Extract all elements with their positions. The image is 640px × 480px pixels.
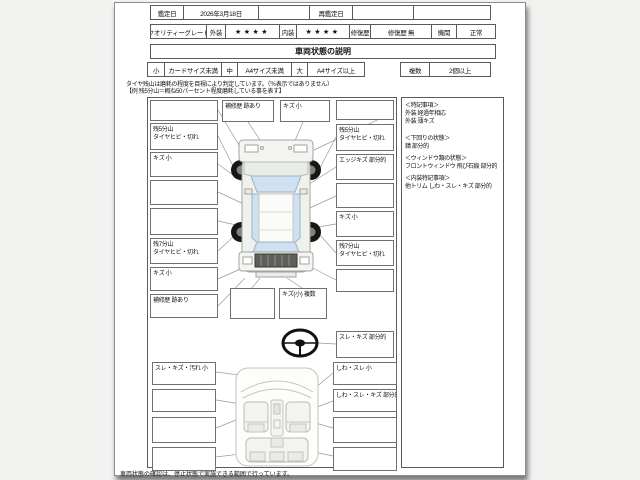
left-side-glass — [252, 194, 259, 244]
interior-label-right-2 — [333, 417, 397, 443]
damage-label-left-6: キズ 小 — [150, 267, 218, 291]
steering-wheel-icon — [283, 330, 317, 356]
size-legend: 小 カードサイズ未満 中 A4サイズ未満 大 A4サイズ以上 — [147, 62, 365, 77]
screen: 鑑定日 2026年3月18日 再鑑定日 クオリティーグレード 外装 ★★★★ 内… — [0, 0, 640, 480]
appraisal-date-label: 鑑定日 — [150, 5, 184, 20]
damage-label-right-front-tire: 残5分山 タイヤヒビ・切れ — [336, 124, 394, 151]
label-line: しわ・スレ・キズ 部分的 — [336, 392, 394, 400]
engine-value: 正常 — [456, 24, 496, 39]
damage-label-hood-repair: 補修歴 跡あり — [222, 100, 274, 122]
reappraisal-date-value — [352, 5, 414, 20]
rear-glass — [253, 242, 299, 252]
label-line: スレ・キズ 部分的 — [339, 334, 391, 342]
repair-history-value: 修復歴 無 — [370, 24, 432, 39]
grade-label: クオリティーグレード — [150, 24, 207, 39]
label-line: タイヤヒビ・切れ — [153, 249, 215, 257]
remarks-line: 他トリム しわ・スレ・キズ 部分的 — [405, 181, 502, 190]
appraisal-date-value: 2026年3月18日 — [183, 5, 259, 20]
engine-label: 機関 — [431, 24, 457, 39]
windshield-glass — [251, 176, 301, 192]
size-small-label: 小 — [147, 62, 165, 77]
label-line: キズ 小 — [153, 270, 215, 278]
quality-grade-row: クオリティーグレード 外装 ★★★★ 内装 ★★★★ 修復歴 修復歴 無 機関 … — [150, 24, 496, 39]
label-line: 補修歴 跡あり — [153, 297, 215, 305]
damage-label-hood-scratch: キズ 小 — [280, 100, 330, 122]
blank-cell — [258, 5, 310, 20]
label-line: 補修歴 跡あり — [225, 103, 271, 111]
remarks-line: フロントウィンドウ 飛び石痕 部分的 — [405, 161, 502, 170]
interior-label-left-1 — [152, 389, 216, 412]
damage-label-right-3 — [336, 183, 394, 208]
label-line: 残5分山 — [339, 127, 391, 135]
blank-cell — [413, 5, 491, 20]
label-line: キズ(小) 複数 — [282, 291, 324, 299]
damage-label-left-rear-tire: 残7分山 タイヤヒビ・切れ — [150, 238, 218, 264]
size-large-value: A4サイズ以上 — [307, 62, 365, 77]
damage-label-right-0 — [336, 100, 394, 120]
label-line: 残5分山 — [153, 126, 215, 134]
page-title: 車両状態の説明 — [150, 44, 496, 59]
damage-label-steering: スレ・キズ 部分的 — [336, 331, 394, 358]
damage-label-left-0 — [150, 100, 218, 121]
multiple-label: 複数 — [400, 62, 430, 77]
label-line: キズ 小 — [339, 214, 391, 222]
interior-label-right-3 — [333, 447, 397, 471]
size-large-label: 大 — [291, 62, 308, 77]
repair-history-label: 修復歴 — [349, 24, 371, 39]
damage-label-right-4: キズ 小 — [336, 211, 394, 237]
label-line: タイヤヒビ・切れ — [339, 251, 391, 259]
interior-top-view — [236, 368, 318, 466]
remarks-line: 外装 薄キズ — [405, 116, 502, 125]
label-line: スレ・キズ・汚れ 小 — [155, 365, 213, 373]
exterior-stars: ★★★★ — [225, 24, 280, 39]
label-line: 残7分山 — [339, 243, 391, 251]
damage-label-left-front-tire: 残5分山 タイヤヒビ・切れ — [150, 123, 218, 150]
interior-label-seat-wrinkle: しわ・スレ 小 — [333, 362, 397, 385]
damage-label-right-6 — [336, 269, 394, 292]
car-top-view — [231, 140, 321, 277]
label-line: タイヤヒビ・切れ — [339, 135, 391, 143]
interior-label: 内装 — [279, 24, 297, 39]
size-medium-label: 中 — [221, 62, 238, 77]
damage-label-right-edge: エッジキズ 部分的 — [336, 154, 394, 180]
damage-label-rear-0 — [230, 288, 275, 319]
interior-label-left-2 — [152, 417, 216, 443]
label-line: キズ 小 — [153, 155, 215, 163]
label-line: タイヤヒビ・切れ — [153, 134, 215, 142]
appraisal-date-row: 鑑定日 2026年3月18日 再鑑定日 — [150, 5, 491, 20]
damage-label-left-2: キズ 小 — [150, 152, 218, 177]
label-line: エッジキズ 部分的 — [339, 157, 391, 165]
size-small-value: カードサイズ未満 — [164, 62, 222, 77]
remarks-line: 錆 部分的 — [405, 141, 502, 150]
label-line: キズ 小 — [283, 103, 327, 111]
damage-label-left-3 — [150, 180, 218, 205]
label-line: 残7分山 — [153, 241, 215, 249]
size-medium-value: A4サイズ未満 — [237, 62, 292, 77]
right-side-glass — [293, 194, 300, 244]
multiple-value: 2個以上 — [429, 62, 491, 77]
interior-label-dashboard: スレ・キズ・汚れ 小 — [152, 362, 216, 385]
interior-label-left-3 — [152, 447, 216, 471]
damage-label-rear-scratch: キズ(小) 複数 — [279, 288, 327, 319]
damage-label-left-7: 補修歴 跡あり — [150, 294, 218, 318]
multiple-legend: 複数 2個以上 — [400, 62, 491, 77]
tire-note-line2: 【例 残5分山＝概ね50パーセント程度磨耗している事を表す】 — [126, 89, 285, 96]
damage-label-left-4 — [150, 208, 218, 235]
interior-stars: ★★★★ — [296, 24, 350, 39]
exterior-label: 外装 — [206, 24, 226, 39]
label-line: しわ・スレ 小 — [336, 365, 394, 373]
interior-label-seat-damage: しわ・スレ・キズ 部分的 — [333, 389, 397, 412]
damage-label-right-rear-tire: 残7分山 タイヤヒビ・切れ — [336, 240, 394, 266]
reappraisal-date-label: 再鑑定日 — [309, 5, 353, 20]
tire-note-line1: タイヤ残山は磨耗の程度を目視により判定しています。（％表示ではありません） — [126, 82, 333, 89]
